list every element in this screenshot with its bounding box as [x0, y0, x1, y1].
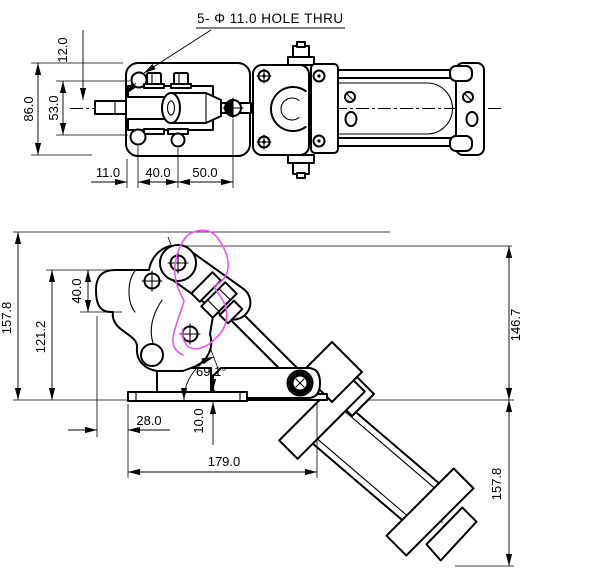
hole-callout-label: 5- Φ 11.0 HOLE THRU: [197, 11, 344, 26]
mount-hole: [131, 130, 146, 145]
dim-40-side-label: 40.0: [69, 278, 84, 303]
tie-rod: [338, 138, 458, 146]
tie-rod: [338, 70, 458, 78]
clamp-technical-drawing: 5- Φ 11.0 HOLE THRU 86.0 53.0 12.0 11: [0, 0, 600, 577]
dim-157-left-label: 157.8: [0, 302, 14, 335]
dim-angle-label: 69.1°: [196, 364, 227, 379]
dim-12-label: 12.0: [55, 37, 70, 62]
top-view: 5- Φ 11.0 HOLE THRU 86.0 53.0 12.0 11: [21, 11, 502, 188]
dim-86-label: 86.0: [21, 96, 36, 121]
bore-arc: [271, 87, 306, 131]
dim-10-label: 10.0: [191, 408, 206, 433]
dim-121-label: 121.2: [33, 321, 48, 354]
dim-179-label: 179.0: [208, 454, 241, 469]
dim-40-top-label: 40.0: [145, 165, 170, 180]
dim-11-label: 11.0: [96, 165, 120, 180]
air-port: [467, 112, 478, 126]
body-mount-hole: [141, 344, 163, 366]
base-plate: [128, 392, 247, 401]
dim-28-label: 28.0: [136, 413, 161, 428]
air-port: [346, 112, 357, 126]
dim-50-label: 50.0: [192, 165, 217, 180]
dim-53-label: 53.0: [46, 95, 61, 120]
dim-157-right-label: 157.8: [489, 468, 504, 501]
side-view: 157.8 121.2 40.0 146.7 157.8 28.0 10.0 1…: [0, 230, 523, 566]
top-view-part: [70, 42, 502, 178]
technical-drawing-page: 5- Φ 11.0 HOLE THRU 86.0 53.0 12.0 11: [0, 0, 600, 577]
dim-146-label: 146.7: [508, 309, 523, 342]
